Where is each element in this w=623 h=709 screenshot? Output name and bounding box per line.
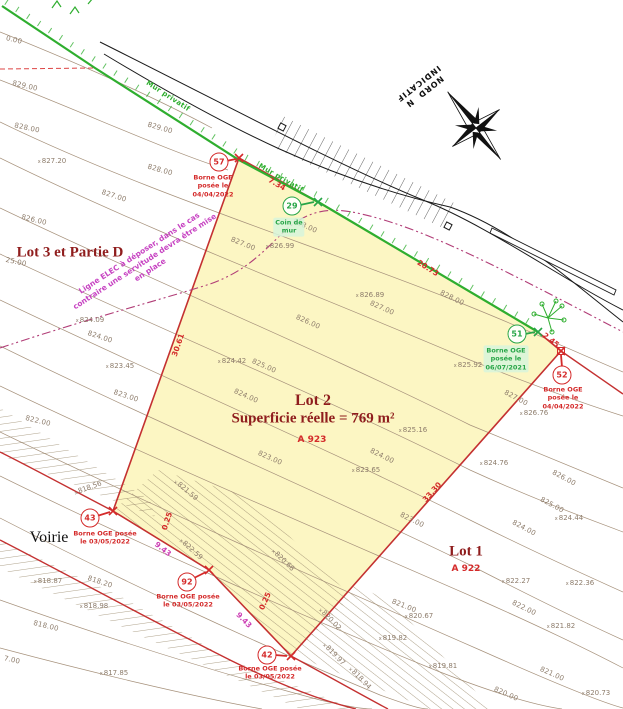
- spot-height-818.87: 818.87: [34, 577, 62, 585]
- compass-rose: [424, 73, 524, 178]
- survey-marker-note-43: Borne OGE poséele 03/05/2022: [73, 530, 136, 547]
- spot-height-821.82: 821.82: [547, 622, 575, 630]
- lot1-parcel-number: A 922: [452, 564, 481, 574]
- spot-height-824.42: 824.42: [218, 357, 246, 365]
- spot-height-824.76: 824.76: [480, 459, 508, 467]
- survey-marker-note-57: Borne OGEposée le04/04/2022: [193, 173, 234, 198]
- survey-marker-note-51: Borne OGEposée le06/07/2021: [484, 345, 529, 372]
- survey-marker-43: 43: [81, 509, 100, 528]
- spot-height-820.67: 820.67: [405, 612, 433, 620]
- spot-height-819.82: 819.82: [379, 634, 407, 642]
- red-dashed-line: [0, 68, 94, 69]
- spot-height-825.92: 825.92: [454, 361, 482, 369]
- survey-marker-note-29: Coin demur: [273, 218, 304, 237]
- spot-height-817.85: 817.85: [100, 669, 128, 677]
- spot-height-825.16: 825.16: [399, 426, 427, 434]
- lot2-title: Lot 2: [295, 392, 331, 410]
- spot-height-822.27: 822.27: [502, 577, 530, 585]
- lot2-area-label: Superficie réelle = 769 m²: [232, 411, 395, 428]
- lot3-title: Lot 3 et Partie D: [17, 245, 124, 262]
- spot-height-824.44: 824.44: [555, 514, 583, 522]
- survey-marker-42: 42: [258, 646, 277, 665]
- spot-height-826.89: 826.89: [356, 291, 384, 299]
- survey-marker-note-92: Borne OGE poséele 03/05/2022: [156, 593, 219, 610]
- lot1-title: Lot 1: [449, 544, 483, 561]
- survey-marker-92: 92: [178, 573, 197, 592]
- spot-height-822.36: 822.36: [566, 579, 594, 587]
- spot-height-824.09: 824.09: [76, 316, 104, 324]
- survey-marker-note-52: Borne OGEposée le04/04/2022: [543, 385, 584, 410]
- spot-height-819.81: 819.81: [429, 662, 457, 670]
- retaining-wall: [490, 228, 616, 295]
- spot-height-826.99: 826.99: [266, 242, 294, 250]
- lot2-parcel-number: A 923: [298, 435, 327, 445]
- survey-marker-51: 51: [508, 325, 527, 344]
- survey-marker-57: 57: [210, 153, 229, 172]
- survey-marker-52: 52: [553, 366, 572, 385]
- road-label: Voirie: [30, 529, 69, 547]
- survey-marker-note-42: Borne OGE poséele 03/05/2022: [238, 665, 301, 682]
- spot-height-827.20: 827.20: [38, 157, 66, 165]
- survey-marker-29: 29: [283, 197, 302, 216]
- spot-height-820.73: 820.73: [582, 689, 610, 697]
- survey-plan: Lot 3 et Partie D Lot 2 Superficie réell…: [0, 0, 623, 709]
- spot-height-823.65: 823.65: [352, 466, 380, 474]
- spot-height-823.45: 823.45: [106, 362, 134, 370]
- tree-icon: [532, 299, 566, 334]
- spot-height-818.98: 818.98: [80, 602, 108, 610]
